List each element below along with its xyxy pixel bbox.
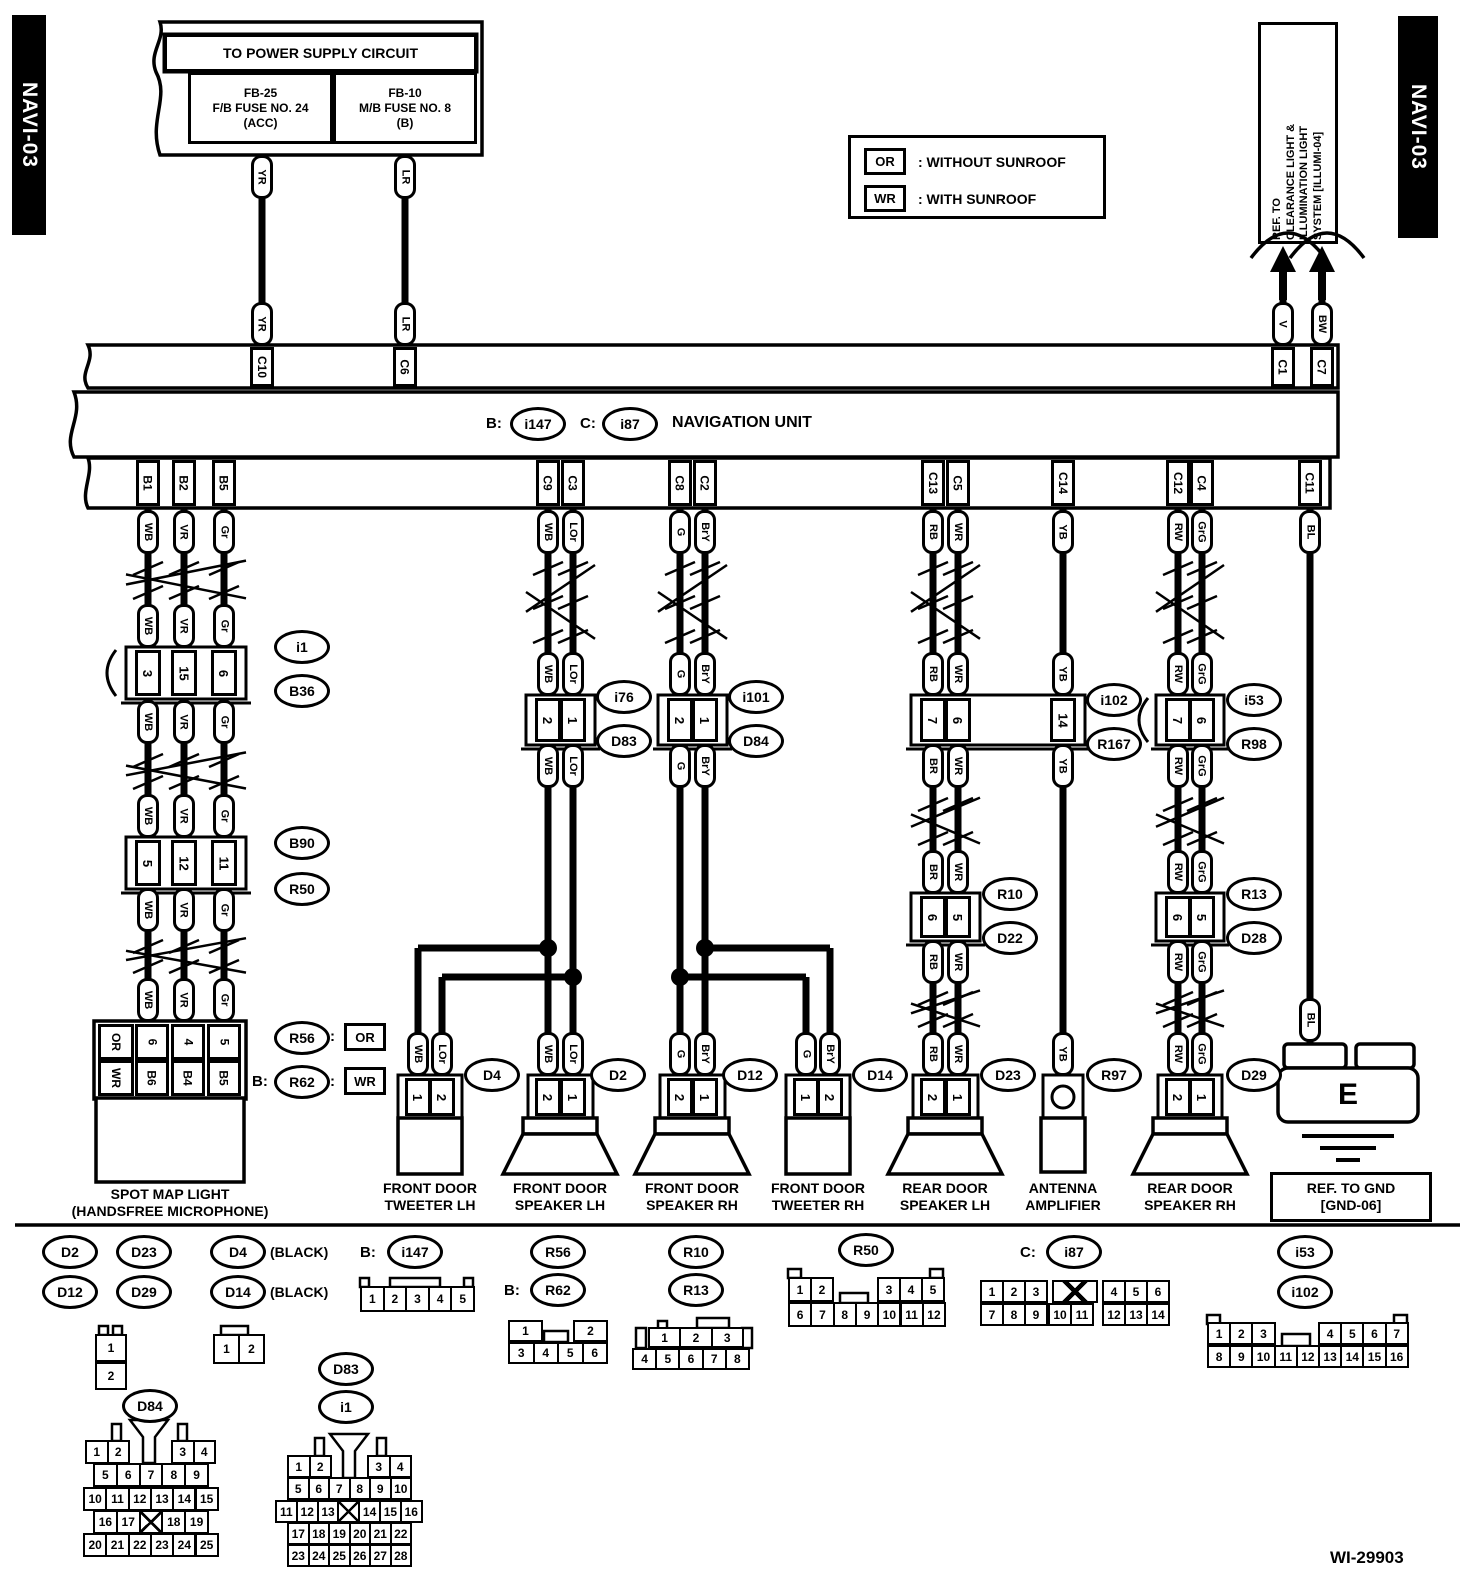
- wire-color-pill: VR: [173, 700, 195, 744]
- nav-unit-connector-b: i147: [510, 407, 566, 441]
- wire-color-pill-label: RW: [1172, 523, 1184, 541]
- inline-connector-pin: 5: [135, 840, 161, 886]
- ref-illumination-box: REF. TO CLEARANCE LIGHT & ILLUMINATION L…: [1258, 22, 1338, 244]
- wire-color-pill-label: GrG: [1196, 951, 1208, 972]
- connector-b90-ellipse-label: B90: [289, 835, 315, 851]
- pinout-cell: 14: [172, 1487, 196, 1511]
- pinout-cell: 10: [877, 1302, 901, 1327]
- pinout-cell: 2: [238, 1334, 265, 1364]
- wire-color-pill-label: LR: [399, 317, 411, 332]
- inline-connector-pin-label: 6: [216, 669, 231, 676]
- legend-code-with-sunroof: WR: [864, 185, 906, 212]
- connector-pin-label-label: B5: [217, 475, 231, 490]
- fuse-cell-left: FB-25 F/B FUSE NO. 24 (ACC): [188, 72, 333, 144]
- connector-i101-ellipse: i101: [728, 680, 784, 714]
- wire-color-pill: VR: [173, 794, 195, 838]
- pinout-cell: 22: [128, 1533, 152, 1557]
- pinout-cell: 12: [922, 1302, 946, 1327]
- inline-connector-pin-label: 2: [540, 1093, 555, 1100]
- connector-pin-label-label: C5: [951, 475, 965, 490]
- pinout-cell: 9: [855, 1302, 879, 1327]
- fuse-right-desc: M/B FUSE NO. 8: [359, 101, 451, 116]
- wire-color-pill: YB: [1052, 652, 1074, 696]
- legend-text-with-sunroof: : WITH SUNROOF: [918, 191, 1036, 207]
- pinout-cell: 10: [1251, 1345, 1275, 1368]
- wire-color-pill: WB: [137, 510, 159, 554]
- power-supply-title: TO POWER SUPPLY CIRCUIT: [223, 45, 418, 61]
- d4-black-note: (BLACK): [270, 1244, 328, 1260]
- fuse-right-type: (B): [397, 116, 414, 131]
- connector-pin-label: C1: [1271, 347, 1295, 387]
- wire-color-pill-label: WB: [142, 617, 154, 635]
- wire-color-pill: Gr: [213, 794, 235, 838]
- connector-pin-label-label: C14: [1056, 472, 1070, 494]
- pinout-cell: 24: [172, 1533, 196, 1557]
- pinout-cell: 8: [349, 1477, 372, 1500]
- wire-color-pill-label: LOr: [567, 756, 579, 776]
- connector-r13-ellipse: R13: [1226, 877, 1282, 911]
- pinout-cell: 14: [1340, 1345, 1364, 1368]
- connector-pin-label: C5: [946, 460, 970, 506]
- wire-color-pill: RW: [1167, 744, 1189, 788]
- page-code-right-label: NAVI-03: [1406, 84, 1430, 170]
- connector-pin-label-label: B1: [141, 475, 155, 490]
- pinout-cell: 4: [1102, 1280, 1126, 1303]
- inline-connector-pin: 2: [667, 698, 693, 742]
- pinout-cell: 6: [1362, 1322, 1386, 1345]
- connector-pin-label-label: C12: [1171, 472, 1185, 494]
- connector-pin-label-label: C6: [398, 359, 412, 374]
- label-spot-line1: SPOT MAP LIGHT: [45, 1186, 295, 1203]
- inline-connector-pin: 6: [1189, 698, 1215, 742]
- wire-color-pill-label: LOr: [567, 522, 579, 542]
- connector-i87-ellipse: i87: [1046, 1235, 1102, 1269]
- inline-connector-pin-label: 2: [925, 1093, 940, 1100]
- pinout-cell: 3: [711, 1327, 744, 1348]
- wire-color-pill: LOr: [562, 652, 584, 696]
- inline-connector-pin: 1: [692, 1078, 718, 1116]
- connector-r50-ellipse-label: R50: [853, 1242, 879, 1258]
- wire-color-pill-label: G: [674, 1050, 686, 1059]
- spot-row-code: OR: [98, 1024, 134, 1060]
- wire-color-pill-label: VR: [178, 992, 190, 1007]
- pinout-cell: 10: [1048, 1303, 1072, 1326]
- ref-ground-box: REF. TO GND [GND-06]: [1270, 1172, 1432, 1222]
- inline-connector-pin: 1: [945, 1078, 971, 1116]
- wire-color-pill: YB: [1052, 1032, 1074, 1076]
- connector-pin-label-label: C13: [926, 472, 940, 494]
- inline-connector-pin-label: 6: [950, 716, 965, 723]
- wire-color-pill: BW: [1311, 302, 1333, 346]
- connector-r10-ellipse: R10: [982, 877, 1038, 911]
- pinout-cell: 2: [573, 1320, 608, 1342]
- wire-color-pill-label: BR: [927, 758, 939, 774]
- connector-d14-ellipse-label: D14: [225, 1284, 251, 1300]
- inline-connector-pin: 1: [560, 1078, 586, 1116]
- pinout-cell: 12: [1296, 1345, 1320, 1368]
- connector-d14-ellipse: D14: [210, 1275, 266, 1309]
- wire-color-pill: Gr: [213, 888, 235, 932]
- wire-color-pill-label: Gr: [218, 994, 230, 1007]
- pinout-cell: 13: [1318, 1345, 1342, 1368]
- pinout-cell: 4: [428, 1286, 453, 1312]
- inline-connector-pin: 5: [945, 896, 971, 938]
- connector-r167-ellipse: R167: [1086, 727, 1142, 761]
- pinout-cell: 23: [150, 1533, 174, 1557]
- connector-d23-ellipse: D23: [980, 1058, 1036, 1092]
- legend-text-without-sunroof: : WITHOUT SUNROOF: [918, 154, 1066, 170]
- wire-color-pill: WR: [947, 652, 969, 696]
- pinout-cell: 25: [328, 1544, 351, 1567]
- connector-d4-ellipse-label: D4: [229, 1244, 247, 1260]
- connector-r56-ellipse: R56: [274, 1021, 330, 1055]
- inline-connector-pin-label: 2: [1170, 1093, 1185, 1100]
- inline-connector-pin: 6: [920, 896, 946, 938]
- wire-color-pill: LOr: [562, 744, 584, 788]
- wire-color-pill-label: RB: [927, 954, 939, 970]
- wire-color-pill-label: LOr: [436, 1044, 448, 1064]
- wire-color-pill: GrG: [1191, 940, 1213, 984]
- wire-color-pill-label: G: [674, 762, 686, 771]
- wire-color-pill-label: Gr: [218, 810, 230, 823]
- connector-d83-ellipse: D83: [318, 1352, 374, 1386]
- connector-d23-ellipse: D23: [116, 1235, 172, 1269]
- wire-color-pill: WR: [947, 1032, 969, 1076]
- pinout-cell: 5: [1124, 1280, 1148, 1303]
- wire-color-pill: LOr: [431, 1032, 453, 1076]
- connector-d83-ellipse-label: D83: [333, 1361, 359, 1377]
- connector-d29-ellipse-label: D29: [131, 1284, 157, 1300]
- pinout-cell: 21: [369, 1522, 392, 1545]
- ref-illumination-line2: CLEARANCE LIGHT &: [1285, 26, 1299, 240]
- connector-d84-ellipse-label: D84: [137, 1398, 163, 1414]
- wire-color-pill-label: WB: [142, 901, 154, 919]
- wire-color-pill: G: [795, 1032, 817, 1076]
- ref-ground-line2: [GND-06]: [1273, 1197, 1429, 1214]
- wire-color-pill-label: WB: [142, 713, 154, 731]
- pinout-cell: 19: [184, 1510, 209, 1534]
- pinout-cell: 3: [877, 1277, 901, 1302]
- inline-connector-pin: 15: [171, 650, 197, 696]
- ground-symbol-label: E: [1278, 1068, 1418, 1122]
- spot-pin-cell-label: 4: [181, 1039, 195, 1046]
- pinout-cell: 12: [128, 1487, 152, 1511]
- connector-pin-label: C13: [921, 460, 945, 506]
- wire-color-pill-label: WR: [952, 523, 964, 541]
- pinout-cell: 1: [1207, 1322, 1231, 1345]
- connector-r56-ellipse-label: R56: [289, 1030, 315, 1046]
- wire-color-pill: YR: [251, 302, 273, 346]
- wire-color-pill-label: RB: [927, 524, 939, 540]
- connector-i53-ellipse: i53: [1277, 1235, 1333, 1269]
- inline-connector-pin: 1: [1189, 1078, 1215, 1116]
- pinout-cell: 2: [1229, 1322, 1253, 1345]
- pinout-cell: 2: [679, 1327, 712, 1348]
- pinout-cell: 24: [308, 1544, 331, 1567]
- connector-r98-ellipse-label: R98: [1241, 736, 1267, 752]
- wire-color-pill: BR: [922, 850, 944, 894]
- pinout-cell: 18: [161, 1510, 186, 1534]
- pinout-cell: 17: [287, 1522, 310, 1545]
- connector-pin-label: C12: [1166, 460, 1190, 506]
- inline-connector-pin-label: 6: [925, 913, 940, 920]
- wire-color-pill: BrY: [694, 744, 716, 788]
- connector-pin-label: C4: [1190, 460, 1214, 506]
- connector-d12-ellipse-label: D12: [737, 1067, 763, 1083]
- inline-connector-pin-label: 2: [434, 1093, 449, 1100]
- wire-color-pill: G: [669, 652, 691, 696]
- connector-d2-ellipse-label: D2: [61, 1244, 79, 1260]
- figure-number: WI-29903: [1330, 1548, 1404, 1568]
- pinout-cell: [139, 1510, 164, 1534]
- wire-color-pill: WR: [947, 744, 969, 788]
- pinout-cell: 13: [317, 1500, 340, 1523]
- pinout-cell: [1052, 1280, 1098, 1303]
- wire-color-pill: VR: [173, 888, 195, 932]
- pinout-cell: 1: [980, 1280, 1004, 1303]
- inline-connector-pin: 2: [817, 1078, 843, 1116]
- wire-color-pill-label: YB: [1057, 758, 1069, 773]
- r56-colon: :: [330, 1028, 335, 1045]
- inline-connector-pin-label: 1: [565, 716, 580, 723]
- nav-unit-connector-c: i87: [602, 407, 658, 441]
- pinout-cell: 2: [810, 1277, 834, 1302]
- wire-color-pill-label: GrG: [1196, 663, 1208, 684]
- connector-pin-label: C11: [1298, 460, 1322, 506]
- pinout-cell: 21: [105, 1533, 129, 1557]
- inline-connector-pin-label: 5: [950, 913, 965, 920]
- pinout-cell: 8: [1002, 1303, 1026, 1326]
- connector-d23-ellipse-label: D23: [995, 1067, 1021, 1083]
- connector-pin-label-label: C4: [1195, 475, 1209, 490]
- pinout-cell: 9: [1229, 1345, 1253, 1368]
- pinout-cell: 1: [213, 1334, 240, 1364]
- inline-connector-pin-label: 2: [672, 1093, 687, 1100]
- wire-color-pill: WB: [537, 1032, 559, 1076]
- inline-connector-pin-label: 7: [1170, 716, 1185, 723]
- connector-r167-ellipse-label: R167: [1097, 736, 1130, 752]
- connector-d2-ellipse: D2: [590, 1058, 646, 1092]
- connector-d23-ellipse-label: D23: [131, 1244, 157, 1260]
- connector-pin-label-label: C7: [1315, 359, 1329, 374]
- connector-d22-ellipse-label: D22: [997, 930, 1023, 946]
- pinout-cell: 7: [328, 1477, 351, 1500]
- pinout-cell: 7: [702, 1348, 727, 1370]
- wire-color-pill: BrY: [819, 1032, 841, 1076]
- connector-i147-ellipse: i147: [387, 1235, 443, 1269]
- connector-b36-ellipse: B36: [274, 674, 330, 708]
- pinout-cell: 15: [195, 1487, 219, 1511]
- pinout-cell: 15: [379, 1500, 402, 1523]
- label-rear-rh-line2: SPEAKER RH: [1115, 1197, 1265, 1214]
- pinout-cell: 20: [83, 1533, 107, 1557]
- wire-color-pill: WB: [137, 604, 159, 648]
- fuse-left-id: FB-25: [244, 86, 277, 101]
- wire-color-pill-label: WB: [542, 1045, 554, 1063]
- wire-color-pill-label: WB: [142, 991, 154, 1009]
- wire-color-pill-label: WR: [952, 665, 964, 683]
- connector-d84-ellipse: D84: [122, 1389, 178, 1423]
- inline-connector-pin-label: 15: [177, 666, 192, 680]
- pinout-cell: 4: [632, 1348, 657, 1370]
- wire-color-pill: GrG: [1191, 652, 1213, 696]
- inline-connector-pin-label: 6: [1170, 913, 1185, 920]
- wire-color-pill-label: GrG: [1196, 861, 1208, 882]
- inline-connector-pin-label: 1: [697, 1093, 712, 1100]
- connector-pin-label-label: C10: [255, 356, 269, 378]
- connector-pin-label: C6: [393, 347, 417, 387]
- wire-color-pill-label: WB: [542, 757, 554, 775]
- wire-color-pill-label: VR: [178, 902, 190, 917]
- connector-r10-ellipse-label: R10: [997, 886, 1023, 902]
- wire-color-pill: RW: [1167, 652, 1189, 696]
- pinout-cell: 3: [1251, 1322, 1275, 1345]
- page-code-right: NAVI-03: [1398, 16, 1438, 238]
- spot-pin-cell: 6: [135, 1024, 169, 1060]
- wire-color-pill-label: WR: [952, 1045, 964, 1063]
- pinout-cell: 1: [287, 1455, 311, 1478]
- wire-color-pill-label: RW: [1172, 1045, 1184, 1063]
- pinout-cell: 1: [360, 1286, 385, 1312]
- wire-color-pill: BrY: [694, 652, 716, 696]
- i87-c-prefix: C:: [1020, 1244, 1036, 1261]
- connector-pin-label-label: C9: [541, 475, 555, 490]
- inline-connector-pin: 2: [920, 1078, 946, 1116]
- connector-b90-ellipse: B90: [274, 826, 330, 860]
- wire-color-pill: WB: [137, 700, 159, 744]
- pinout-cell: 6: [308, 1477, 331, 1500]
- wire-color-pill: WR: [947, 510, 969, 554]
- spot-row-code-label: OR: [109, 1033, 123, 1051]
- label-spot-line2: (HANDSFREE MICROPHONE): [45, 1203, 295, 1220]
- wire-color-pill-label: BrY: [699, 664, 711, 684]
- ref-ground-line1: REF. TO GND: [1273, 1180, 1429, 1197]
- page-code-left: NAVI-03: [12, 15, 46, 235]
- wire-color-pill: RB: [922, 652, 944, 696]
- wire-color-pill-label: YB: [1057, 1046, 1069, 1061]
- wire-color-pill: G: [669, 1032, 691, 1076]
- page-code-left-label: NAVI-03: [17, 82, 41, 168]
- connector-pin-label: C7: [1310, 347, 1334, 387]
- pinout-cell: 2: [1002, 1280, 1026, 1303]
- nav-unit-c-prefix: C:: [580, 415, 596, 432]
- wire-color-pill: YB: [1052, 510, 1074, 554]
- connector-pin-label: B5: [212, 460, 236, 506]
- ref-illumination-line1: REF. TO: [1271, 26, 1285, 240]
- pinout-cell: 17: [116, 1510, 141, 1534]
- pinout-cell: 5: [93, 1463, 118, 1487]
- connector-d84-ellipse: D84: [728, 724, 784, 758]
- legend-code-or: OR: [875, 154, 895, 169]
- inline-connector-pin: 2: [667, 1078, 693, 1116]
- wire-color-pill-label: G: [800, 1050, 812, 1059]
- pinout-cell: 25: [195, 1533, 219, 1557]
- inline-connector-pin: 1: [405, 1078, 431, 1116]
- wire-color-pill-label: LOr: [567, 1044, 579, 1064]
- wire-color-pill-label: G: [674, 528, 686, 537]
- inline-connector-pin: 1: [793, 1078, 819, 1116]
- inline-connector-pin: 6: [211, 650, 237, 696]
- connector-d14-ellipse: D14: [852, 1058, 908, 1092]
- pinout-cell: 15: [1362, 1345, 1386, 1368]
- r62-sunroof-code-label: WR: [354, 1074, 376, 1089]
- wire-color-pill: RW: [1167, 1032, 1189, 1076]
- pinout-cell: 6: [788, 1302, 812, 1327]
- wire-color-pill: WB: [137, 978, 159, 1022]
- inline-connector-pin: 14: [1050, 698, 1076, 742]
- wire-color-pill-label: Gr: [218, 904, 230, 917]
- pinout-cell: 3: [508, 1342, 535, 1364]
- connector-d12-ellipse-label: D12: [57, 1284, 83, 1300]
- wire-color-pill-label: VR: [178, 618, 190, 633]
- pinout-cell: 3: [1024, 1280, 1048, 1303]
- connector-pin-label: C8: [668, 460, 692, 506]
- power-supply-title-box: TO POWER SUPPLY CIRCUIT: [164, 34, 477, 72]
- connector-pin-label: B1: [136, 460, 160, 506]
- connector-i76-ellipse-label: i76: [614, 689, 633, 705]
- wire-color-pill: YR: [251, 155, 273, 199]
- inline-connector-pin: 3: [135, 650, 161, 696]
- r62-sunroof-code: WR: [344, 1067, 386, 1095]
- connector-i1-ellipse: i1: [318, 1390, 374, 1424]
- label-spot-map-light: SPOT MAP LIGHT (HANDSFREE MICROPHONE): [45, 1186, 295, 1220]
- wire-color-pill: Gr: [213, 700, 235, 744]
- fuse-right-id: FB-10: [388, 86, 421, 101]
- pinout-cell: 1: [95, 1334, 127, 1362]
- nav-unit-b-prefix: B:: [486, 415, 502, 432]
- inline-connector-pin-label: 1: [1194, 1093, 1209, 1100]
- spot-pin-cell: 5: [207, 1024, 241, 1060]
- wire-color-pill-label: V: [1277, 320, 1289, 327]
- connector-d29-ellipse-label: D29: [1241, 1067, 1267, 1083]
- wire-color-pill-label: YB: [1057, 666, 1069, 681]
- pinout-cell: 27: [369, 1544, 392, 1567]
- label-speaker-lh-line1: FRONT DOOR: [485, 1180, 635, 1197]
- i147-b-prefix: B:: [360, 1244, 376, 1261]
- r56-sunroof-code-label: OR: [355, 1030, 375, 1045]
- label-front-door-tweeter-lh: FRONT DOOR TWEETER LH: [355, 1180, 505, 1214]
- pinout-cell: 19: [328, 1522, 351, 1545]
- wire-color-pill-label: WB: [412, 1045, 424, 1063]
- connector-d4-ellipse: D4: [210, 1235, 266, 1269]
- connector-pin-label-label: C3: [566, 475, 580, 490]
- spot-row-code-label: WR: [109, 1068, 123, 1088]
- connector-i53-ellipse-label: i53: [1295, 1244, 1314, 1260]
- connector-i76-ellipse: i76: [596, 680, 652, 714]
- pinout-cell: 5: [557, 1342, 584, 1364]
- wire-color-pill-label: Gr: [218, 620, 230, 633]
- connector-d22-ellipse: D22: [982, 921, 1038, 955]
- pinout-cell: 1: [648, 1327, 681, 1348]
- connector-i101-ellipse-label: i101: [742, 689, 769, 705]
- pinout-cell: 4: [899, 1277, 923, 1302]
- connector-d84-ellipse-label: D84: [743, 733, 769, 749]
- connector-i1-ellipse-label: i1: [296, 639, 308, 655]
- connector-d28-ellipse: D28: [1226, 921, 1282, 955]
- connector-d4-ellipse-label: D4: [483, 1067, 501, 1083]
- wire-color-pill-label: WR: [952, 863, 964, 881]
- connector-r62-ellipse-label: R62: [289, 1074, 315, 1090]
- pinout-cell: 7: [1385, 1322, 1409, 1345]
- label-speaker-lh-line2: SPEAKER LH: [485, 1197, 635, 1214]
- pinout-cell: 5: [287, 1477, 310, 1500]
- wire-color-pill-label: GrG: [1196, 755, 1208, 776]
- wire-color-pill-label: VR: [178, 524, 190, 539]
- wire-color-pill: LOr: [562, 1032, 584, 1076]
- wire-color-pill-label: YB: [1057, 524, 1069, 539]
- pinout-cell: 4: [1318, 1322, 1342, 1345]
- fuse-cell-right: FB-10 M/B FUSE NO. 8 (B): [333, 72, 477, 144]
